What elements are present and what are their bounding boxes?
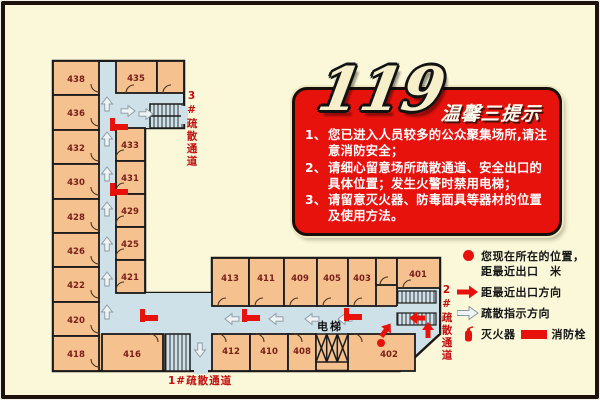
room-422: 422 — [53, 267, 99, 302]
exit-route-2-label: 2#疏散通道 — [441, 284, 452, 362]
room-403: 403 — [348, 258, 376, 306]
room-413: 413 — [212, 258, 249, 306]
room-409: 409 — [284, 258, 317, 306]
room-428: 428 — [53, 199, 99, 233]
room-number: 435 — [127, 74, 145, 84]
room-410: 410 — [250, 334, 288, 371]
room-425: 425 — [116, 227, 145, 260]
room-number: 422 — [67, 281, 85, 291]
tip-text: 请细心留意场所疏散通道、安全出口的具体位置；发生火警时禁用电梯； — [328, 160, 553, 193]
room-number: 412 — [222, 347, 240, 357]
room-number: 418 — [67, 350, 85, 360]
current-location-dot-icon — [455, 249, 481, 261]
exit-route-1-label: 1#疏散通道 — [168, 373, 232, 388]
tip-number: 2、 — [305, 160, 328, 193]
legend-current-location: 您现在所在的位置， 距最近出口 米 — [455, 249, 598, 279]
room-unlabeled — [157, 61, 184, 93]
legend-current-location-text: 您现在所在的位置， — [481, 250, 585, 263]
elevator-label: 电梯 — [317, 319, 343, 333]
legend: 您现在所在的位置， 距最近出口 米 距最近出口方向 疏散指示方向 灭火器 消防栓 — [455, 249, 598, 347]
tip-text: 您已进入人员较多的公众聚集场所,请注意消防安全； — [328, 127, 553, 160]
corridor-junction — [99, 293, 212, 334]
extinguisher-icon — [455, 326, 481, 342]
room-number: 432 — [67, 144, 85, 154]
legend-distance-text: 距最近出口 米 — [481, 265, 562, 278]
room-number: 401 — [409, 270, 427, 280]
room-402: 402 — [348, 334, 415, 371]
sign-119-number: 119 — [314, 60, 450, 120]
room-number: 430 — [67, 178, 85, 188]
room-number: 408 — [293, 347, 311, 357]
room-412: 412 — [212, 334, 250, 371]
white-arrow-icon — [455, 306, 481, 320]
tip-number: 3、 — [305, 192, 328, 225]
room-436: 436 — [53, 95, 99, 130]
legend-hydrant-text: 消防栓 — [552, 326, 587, 342]
room-405: 405 — [317, 258, 348, 306]
legend-nearest-exit: 距最近出口方向 — [455, 284, 598, 300]
legend-evac-direction-text: 疏散指示方向 — [481, 305, 550, 321]
room-number: 410 — [260, 347, 278, 357]
room-unlabeled — [376, 258, 397, 285]
room-number: 413 — [221, 274, 239, 284]
tip-1: 1、 您已进入人员较多的公众聚集场所,请注意消防安全； — [305, 127, 553, 160]
legend-nearest-exit-text: 距最近出口方向 — [481, 284, 562, 300]
room-number: 409 — [291, 274, 309, 284]
tip-2: 2、 请细心留意场所疏散通道、安全出口的具体位置；发生火警时禁用电梯； — [305, 160, 553, 193]
room-418: 418 — [53, 336, 99, 371]
red-arrow-icon — [455, 285, 481, 299]
evacuation-poster: 438 436 432 430 428 426 422 420 418 435 … — [0, 0, 600, 400]
tip-number: 1、 — [305, 127, 328, 160]
room-429: 429 — [116, 194, 145, 227]
notice-sign: 119 温馨三提示 1、 您已进入人员较多的公众聚集场所,请注意消防安全； 2、… — [292, 87, 562, 236]
legend-equipment: 灭火器 消防栓 — [455, 326, 598, 342]
room-number: 405 — [323, 274, 341, 284]
room-433: 433 — [116, 128, 145, 161]
legend-extinguisher-text: 灭火器 — [481, 326, 516, 342]
room-number: 402 — [380, 350, 398, 360]
room-401: 401 — [397, 258, 440, 288]
room-number: 428 — [67, 213, 85, 223]
room-number: 403 — [353, 274, 371, 284]
room-number: 438 — [67, 75, 85, 85]
room-416: 416 — [102, 334, 163, 371]
room-number: 416 — [123, 350, 141, 360]
room-number: 411 — [257, 274, 275, 284]
legend-evac-direction: 疏散指示方向 — [455, 305, 598, 321]
sign-title: 温馨三提示 — [440, 99, 543, 126]
exit-route-3-label: 3#疏散通道 — [186, 90, 197, 168]
current-location-dot — [377, 339, 385, 347]
elevator-shaft — [316, 334, 348, 362]
room-411: 411 — [249, 258, 284, 306]
tip-text: 请留意灭火器、防毒面具等器材的位置及使用方法。 — [328, 192, 553, 225]
room-426: 426 — [53, 233, 99, 267]
room-430: 430 — [53, 164, 99, 199]
room-421: 421 — [116, 260, 145, 293]
hydrant-swatch-icon — [521, 330, 547, 339]
room-number: 420 — [67, 316, 85, 326]
stairwell-1 — [165, 334, 190, 371]
tip-3: 3、 请留意灭火器、防毒面具等器材的位置及使用方法。 — [305, 192, 553, 225]
sign-tips: 1、 您已进入人员较多的公众聚集场所,请注意消防安全； 2、 请细心留意场所疏散… — [305, 127, 553, 225]
room-432: 432 — [53, 130, 99, 164]
room-number: 436 — [67, 109, 85, 119]
room-435: 435 — [116, 61, 157, 93]
room-420: 420 — [53, 302, 99, 336]
stairwell-3 — [150, 104, 184, 128]
room-number: 426 — [67, 247, 85, 257]
room-438: 438 — [53, 61, 99, 95]
